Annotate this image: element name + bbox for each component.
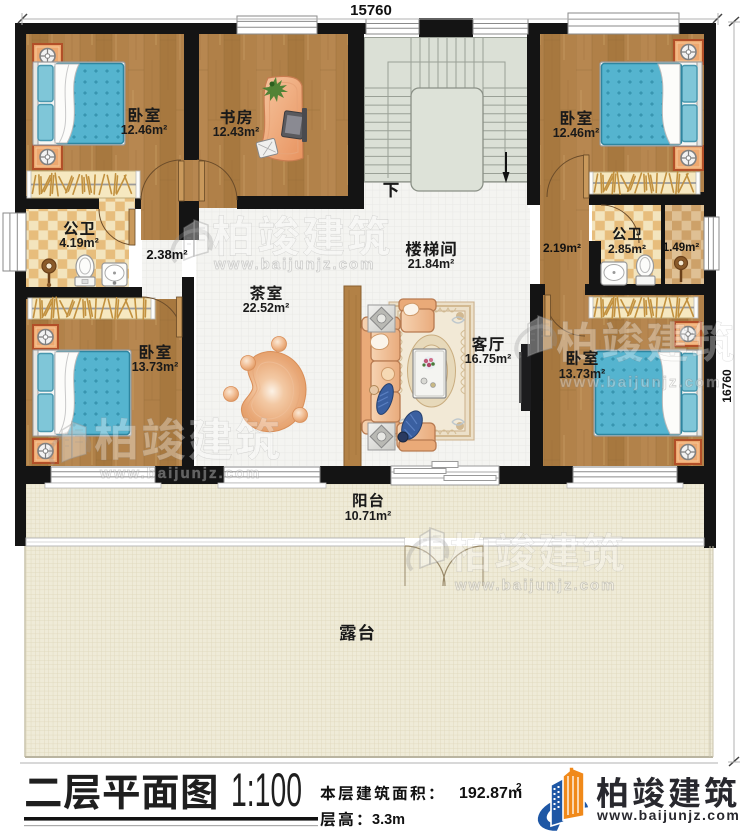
svg-text:16.75m²: 16.75m² [465,352,512,366]
svg-text:10.71m²: 10.71m² [345,509,392,523]
svg-text:3.3m: 3.3m [372,812,405,828]
svg-text:4.19m²: 4.19m² [59,236,99,250]
svg-text:1:100: 1:100 [231,763,302,816]
svg-text:13.73m²: 13.73m² [559,367,606,381]
svg-text:192.87m: 192.87m [459,785,522,802]
svg-text:1.49m²: 1.49m² [663,242,700,254]
svg-text:22.52m²: 22.52m² [243,301,290,315]
svg-text:12.46m²: 12.46m² [553,126,600,140]
svg-text:2.19m²: 2.19m² [543,241,581,255]
svg-text:12.43m²: 12.43m² [213,125,260,139]
svg-text:www.baijunjz.com: www.baijunjz.com [454,577,616,594]
svg-text:2: 2 [516,782,522,793]
svg-text:2.38m²: 2.38m² [146,247,188,262]
svg-text:15760: 15760 [350,2,392,19]
svg-text:16760: 16760 [720,369,734,403]
svg-text:www.baijunjz.com: www.baijunjz.com [99,465,261,482]
svg-text:21.84m²: 21.84m² [408,257,455,271]
svg-text:12.46m²: 12.46m² [121,123,168,137]
svg-text:www.baijunjz.com: www.baijunjz.com [596,807,740,823]
svg-text:2.85m²: 2.85m² [608,242,646,256]
svg-text:www.baijunjz.com: www.baijunjz.com [213,256,375,273]
svg-text:13.73m²: 13.73m² [132,360,179,374]
